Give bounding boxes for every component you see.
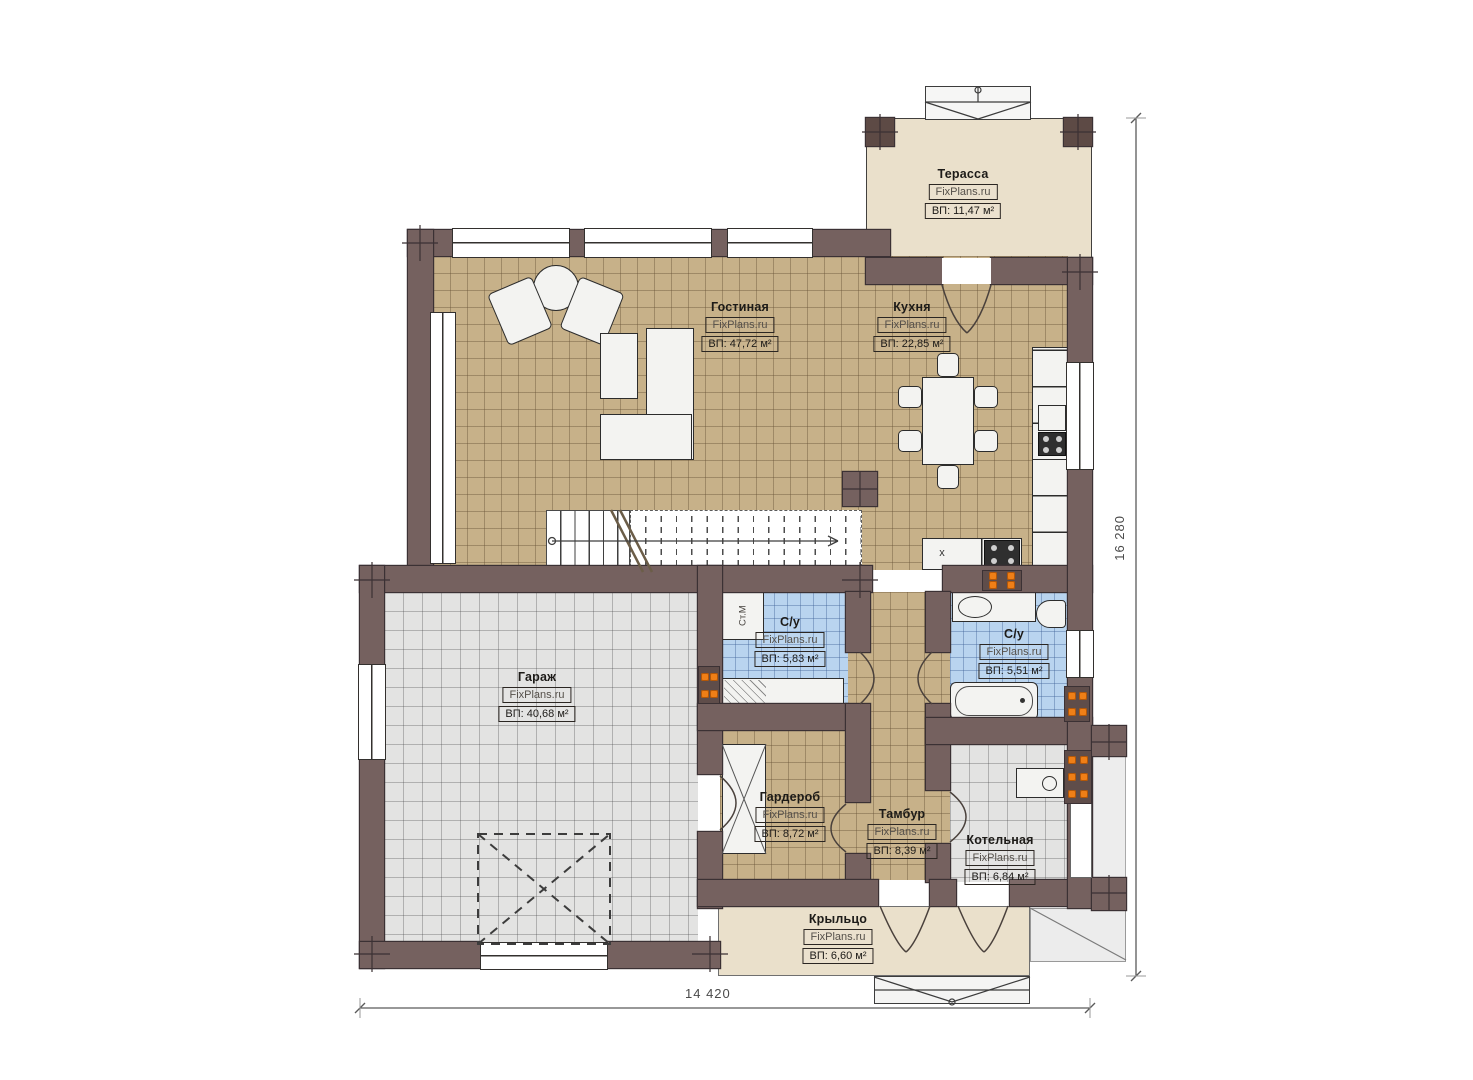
- wall: [698, 704, 848, 730]
- window: [1066, 362, 1094, 470]
- watermark: FixPlans.ru: [965, 850, 1034, 866]
- wall: [360, 566, 872, 592]
- room-name: С/у: [978, 627, 1049, 641]
- watermark: FixPlans.ru: [755, 632, 824, 648]
- chair: [898, 430, 922, 452]
- window: [1066, 630, 1094, 678]
- sofa: [600, 414, 692, 460]
- staircase-lower-run: [546, 510, 630, 572]
- room-label-boiler: Котельная FixPlans.ru ВП: 6,84 м²: [964, 833, 1035, 885]
- side-steps: [1030, 908, 1126, 962]
- radiator: [982, 570, 1022, 591]
- stove: [984, 540, 1020, 568]
- wall: [1092, 726, 1126, 756]
- room-area: ВП: 8,39 м²: [866, 843, 937, 859]
- dimension-height: 16 280: [1112, 515, 1127, 561]
- dimension-width: 14 420: [685, 986, 731, 1001]
- room-label-porch: Крыльцо FixPlans.ru ВП: 6,60 м²: [802, 912, 873, 964]
- cabinet-marker: x: [934, 547, 950, 559]
- wall: [866, 258, 942, 284]
- terrace-steps: [925, 86, 1031, 120]
- room-label-vestibule: Тамбур FixPlans.ru ВП: 8,39 м²: [866, 807, 937, 859]
- watermark: FixPlans.ru: [803, 929, 872, 945]
- window: [727, 228, 813, 258]
- chair: [974, 386, 998, 408]
- room-area: ВП: 8,72 м²: [754, 826, 825, 842]
- room-floor-garage: [384, 592, 698, 942]
- coffee-table: [600, 333, 638, 399]
- room-name: С/у: [754, 615, 825, 629]
- side-door: [1070, 798, 1092, 878]
- staircase-upper-run: [630, 510, 862, 572]
- room-name: Кухня: [873, 300, 950, 314]
- watermark: FixPlans.ru: [755, 807, 824, 823]
- room-label-wardrobe: Гардероб FixPlans.ru ВП: 8,72 м²: [754, 790, 825, 842]
- wall: [846, 704, 870, 802]
- bathtub: [950, 682, 1038, 720]
- boiler-unit: [1016, 768, 1064, 798]
- terrace-pillar: [1064, 118, 1092, 146]
- room-area: ВП: 11,47 м²: [925, 203, 1001, 219]
- room-name: Терасса: [925, 167, 1001, 181]
- radiator: [698, 666, 720, 704]
- room-name: Крыльцо: [802, 912, 873, 926]
- window-sill: [430, 312, 456, 564]
- room-area: ВП: 5,83 м²: [754, 651, 825, 667]
- bathtub-drain: [1020, 698, 1025, 703]
- room-area: ВП: 6,84 м²: [964, 869, 1035, 885]
- room-label-kitchen: Кухня FixPlans.ru ВП: 22,85 м²: [873, 300, 950, 352]
- side-path: [1092, 756, 1126, 878]
- wall: [926, 704, 950, 790]
- boiler-dial: [1042, 776, 1057, 791]
- window: [358, 664, 386, 760]
- room-floor-porch: [718, 906, 1030, 976]
- sink-drainer: [1038, 432, 1066, 456]
- wash-basin: [958, 596, 992, 618]
- room-area: ВП: 6,60 м²: [802, 948, 873, 964]
- room-name: Гостиная: [701, 300, 778, 314]
- kitchen-sink: [1038, 405, 1066, 431]
- radiator: [1064, 750, 1092, 804]
- chair: [898, 386, 922, 408]
- floor-plan: x Ст.М: [0, 0, 1473, 1080]
- radiator: [1064, 686, 1090, 722]
- terrace-pillar: [866, 118, 894, 146]
- toilet: [1036, 600, 1066, 628]
- wall: [360, 566, 384, 968]
- wall: [360, 942, 480, 968]
- chair: [937, 465, 959, 489]
- wall: [608, 942, 720, 968]
- wall: [846, 592, 870, 652]
- window: [452, 228, 570, 258]
- room-label-bath1: С/у FixPlans.ru ВП: 5,83 м²: [754, 615, 825, 667]
- wall: [698, 880, 878, 906]
- watermark: FixPlans.ru: [502, 687, 571, 703]
- window: [584, 228, 712, 258]
- room-label-garage: Гараж FixPlans.ru ВП: 40,68 м²: [498, 670, 575, 722]
- room-name: Тамбур: [866, 807, 937, 821]
- wall: [930, 880, 956, 906]
- room-area: ВП: 40,68 м²: [498, 706, 575, 722]
- room-label-living: Гостиная FixPlans.ru ВП: 47,72 м²: [701, 300, 778, 352]
- chair: [937, 353, 959, 377]
- watermark: FixPlans.ru: [928, 184, 997, 200]
- room-area: ВП: 22,85 м²: [873, 336, 950, 352]
- room-area: ВП: 47,72 м²: [701, 336, 778, 352]
- dining-table: [922, 377, 974, 465]
- watermark: FixPlans.ru: [867, 824, 936, 840]
- kitchen-counter: [1032, 347, 1068, 569]
- room-name: Гардероб: [754, 790, 825, 804]
- chimney-pillar: [843, 472, 877, 506]
- room-label-bath2: С/у FixPlans.ru ВП: 5,51 м²: [978, 627, 1049, 679]
- watermark: FixPlans.ru: [979, 644, 1048, 660]
- garage-door: [480, 942, 608, 970]
- wall: [926, 592, 950, 652]
- vanity-hatch: [724, 680, 766, 704]
- room-area: ВП: 5,51 м²: [978, 663, 1049, 679]
- terrace-door-opening: [942, 258, 991, 284]
- chair: [974, 430, 998, 452]
- room-name: Гараж: [498, 670, 575, 684]
- watermark: FixPlans.ru: [877, 317, 946, 333]
- wall: [1092, 878, 1126, 910]
- room-name: Котельная: [964, 833, 1035, 847]
- watermark: FixPlans.ru: [705, 317, 774, 333]
- room-label-terrace: Терасса FixPlans.ru ВП: 11,47 м²: [925, 167, 1001, 219]
- porch-steps: [874, 976, 1030, 1004]
